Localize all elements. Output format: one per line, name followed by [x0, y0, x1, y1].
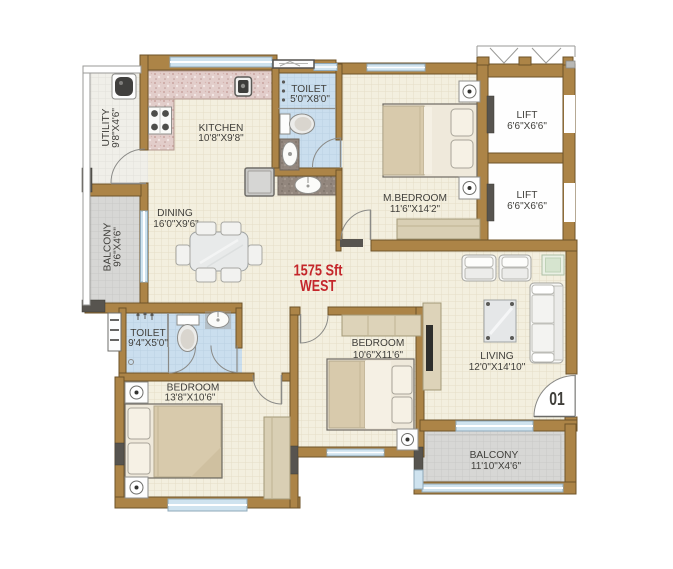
svg-text:9'4"X5'0": 9'4"X5'0" — [128, 338, 168, 349]
svg-text:6'6"X6'6": 6'6"X6'6" — [507, 121, 547, 132]
svg-text:5'0"X8'0": 5'0"X8'0" — [290, 94, 330, 105]
svg-text:10'8"X9'8": 10'8"X9'8" — [198, 133, 244, 144]
svg-text:M.BEDROOM: M.BEDROOM — [383, 193, 447, 204]
svg-text:11'10"X4'6": 11'10"X4'6" — [471, 461, 522, 472]
svg-text:13'8"X10'6": 13'8"X10'6" — [165, 393, 216, 404]
svg-text:BEDROOM: BEDROOM — [352, 338, 405, 349]
svg-text:WEST: WEST — [300, 278, 336, 295]
svg-text:BALCONY: BALCONY — [470, 450, 519, 461]
svg-text:LIVING: LIVING — [480, 351, 513, 362]
svg-text:1575 Sft: 1575 Sft — [294, 263, 343, 280]
svg-text:9'8"X4'6": 9'8"X4'6" — [111, 108, 122, 148]
svg-text:LIFT: LIFT — [517, 190, 538, 201]
svg-text:16'0"X9'6": 16'0"X9'6" — [153, 219, 199, 230]
svg-text:10'6"X11'6": 10'6"X11'6" — [353, 350, 404, 361]
svg-text:9'6"X4'6": 9'6"X4'6" — [113, 227, 124, 267]
svg-text:12'0"X14'10": 12'0"X14'10" — [469, 362, 526, 373]
svg-text:LIFT: LIFT — [517, 110, 538, 121]
svg-text:6'6"X6'6": 6'6"X6'6" — [507, 201, 547, 212]
svg-text:01: 01 — [549, 389, 565, 409]
svg-text:11'6"X14'2": 11'6"X14'2" — [390, 204, 441, 215]
svg-text:DINING: DINING — [157, 208, 193, 219]
